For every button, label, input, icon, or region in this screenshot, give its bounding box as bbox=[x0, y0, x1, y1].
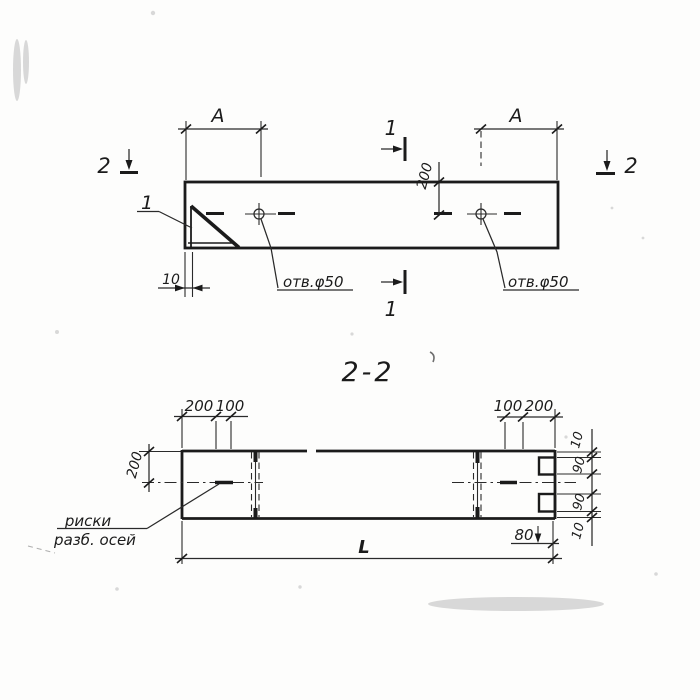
hole-callout-right: отв.φ50 bbox=[483, 219, 579, 291]
dim-a-right: A bbox=[474, 105, 564, 180]
section-mark-1-top: 1 bbox=[381, 116, 405, 161]
axis-note: риски разб. осей bbox=[53, 484, 219, 549]
dim-right-90b-label: 90 bbox=[570, 492, 589, 512]
technical-drawing: A A 200 1 1 bbox=[0, 0, 700, 700]
dim-a-right-label: A bbox=[508, 105, 523, 127]
section-1-top-label: 1 bbox=[385, 116, 398, 140]
dim-tl-100-label: 100 bbox=[216, 397, 245, 415]
blueprint-sheet: A A 200 1 1 bbox=[0, 0, 700, 700]
axis-note-line2: разб. осей bbox=[53, 531, 136, 549]
plan-view: A A 200 1 1 bbox=[97, 105, 637, 321]
dim-10-label: 10 bbox=[162, 272, 180, 288]
dim-a-left: A bbox=[178, 105, 268, 180]
dim-length-l: L bbox=[175, 521, 562, 564]
section-title: 2-2 bbox=[341, 357, 394, 388]
hole-right bbox=[434, 203, 521, 225]
dim-height-200: 200 bbox=[124, 444, 181, 492]
dim-10-endwall: 10 bbox=[158, 252, 210, 297]
wall-lines-left bbox=[252, 452, 260, 518]
section-2-left-label: 2 bbox=[97, 154, 110, 178]
hole-callout-left: отв.φ50 bbox=[261, 219, 353, 291]
dim-right-10b-label: 10 bbox=[569, 521, 588, 541]
section-beam-outline bbox=[182, 450, 555, 519]
dim-right-90a-label: 90 bbox=[570, 455, 589, 475]
dim-tr-200-label: 200 bbox=[525, 397, 554, 415]
section-mark-1-bottom: 1 bbox=[381, 270, 405, 321]
dim-80-notch: 80 bbox=[511, 526, 559, 548]
plan-beam-outline bbox=[185, 182, 558, 248]
dim-200-label: 200 bbox=[414, 161, 436, 191]
hole-callout-left-label: отв.φ50 bbox=[283, 273, 344, 291]
dim-length-l-label: L bbox=[358, 537, 369, 558]
section-mark-2-left: 2 bbox=[97, 149, 138, 178]
dim-right-10a-label: 10 bbox=[568, 430, 587, 450]
section-view-2-2: 2-2 bbox=[53, 357, 601, 564]
hole-left bbox=[206, 203, 295, 225]
section-2-right-label: 2 bbox=[624, 154, 637, 178]
wall-lines-right bbox=[474, 452, 482, 518]
hole-callout-right-label: отв.φ50 bbox=[508, 273, 569, 291]
section-1-bottom-label: 1 bbox=[385, 297, 398, 321]
dim-tr-100-label: 100 bbox=[494, 397, 523, 415]
dim-height-200-label: 200 bbox=[124, 450, 146, 480]
axis-note-line1: риски bbox=[64, 512, 112, 530]
end-notches bbox=[539, 458, 555, 512]
dims-top-left: 200 100 bbox=[174, 397, 248, 449]
dim-tl-200-label: 200 bbox=[185, 397, 214, 415]
dim-80-label: 80 bbox=[514, 526, 533, 544]
dims-top-right: 100 200 bbox=[494, 397, 563, 449]
dims-right-chain: 10 90 90 10 bbox=[557, 429, 601, 546]
dim-a-left-label: A bbox=[210, 105, 225, 127]
item-mark-1-label: 1 bbox=[141, 192, 153, 214]
section-mark-2-right: 2 bbox=[596, 150, 638, 178]
dim-200-hole-offset: 200 bbox=[414, 161, 444, 220]
